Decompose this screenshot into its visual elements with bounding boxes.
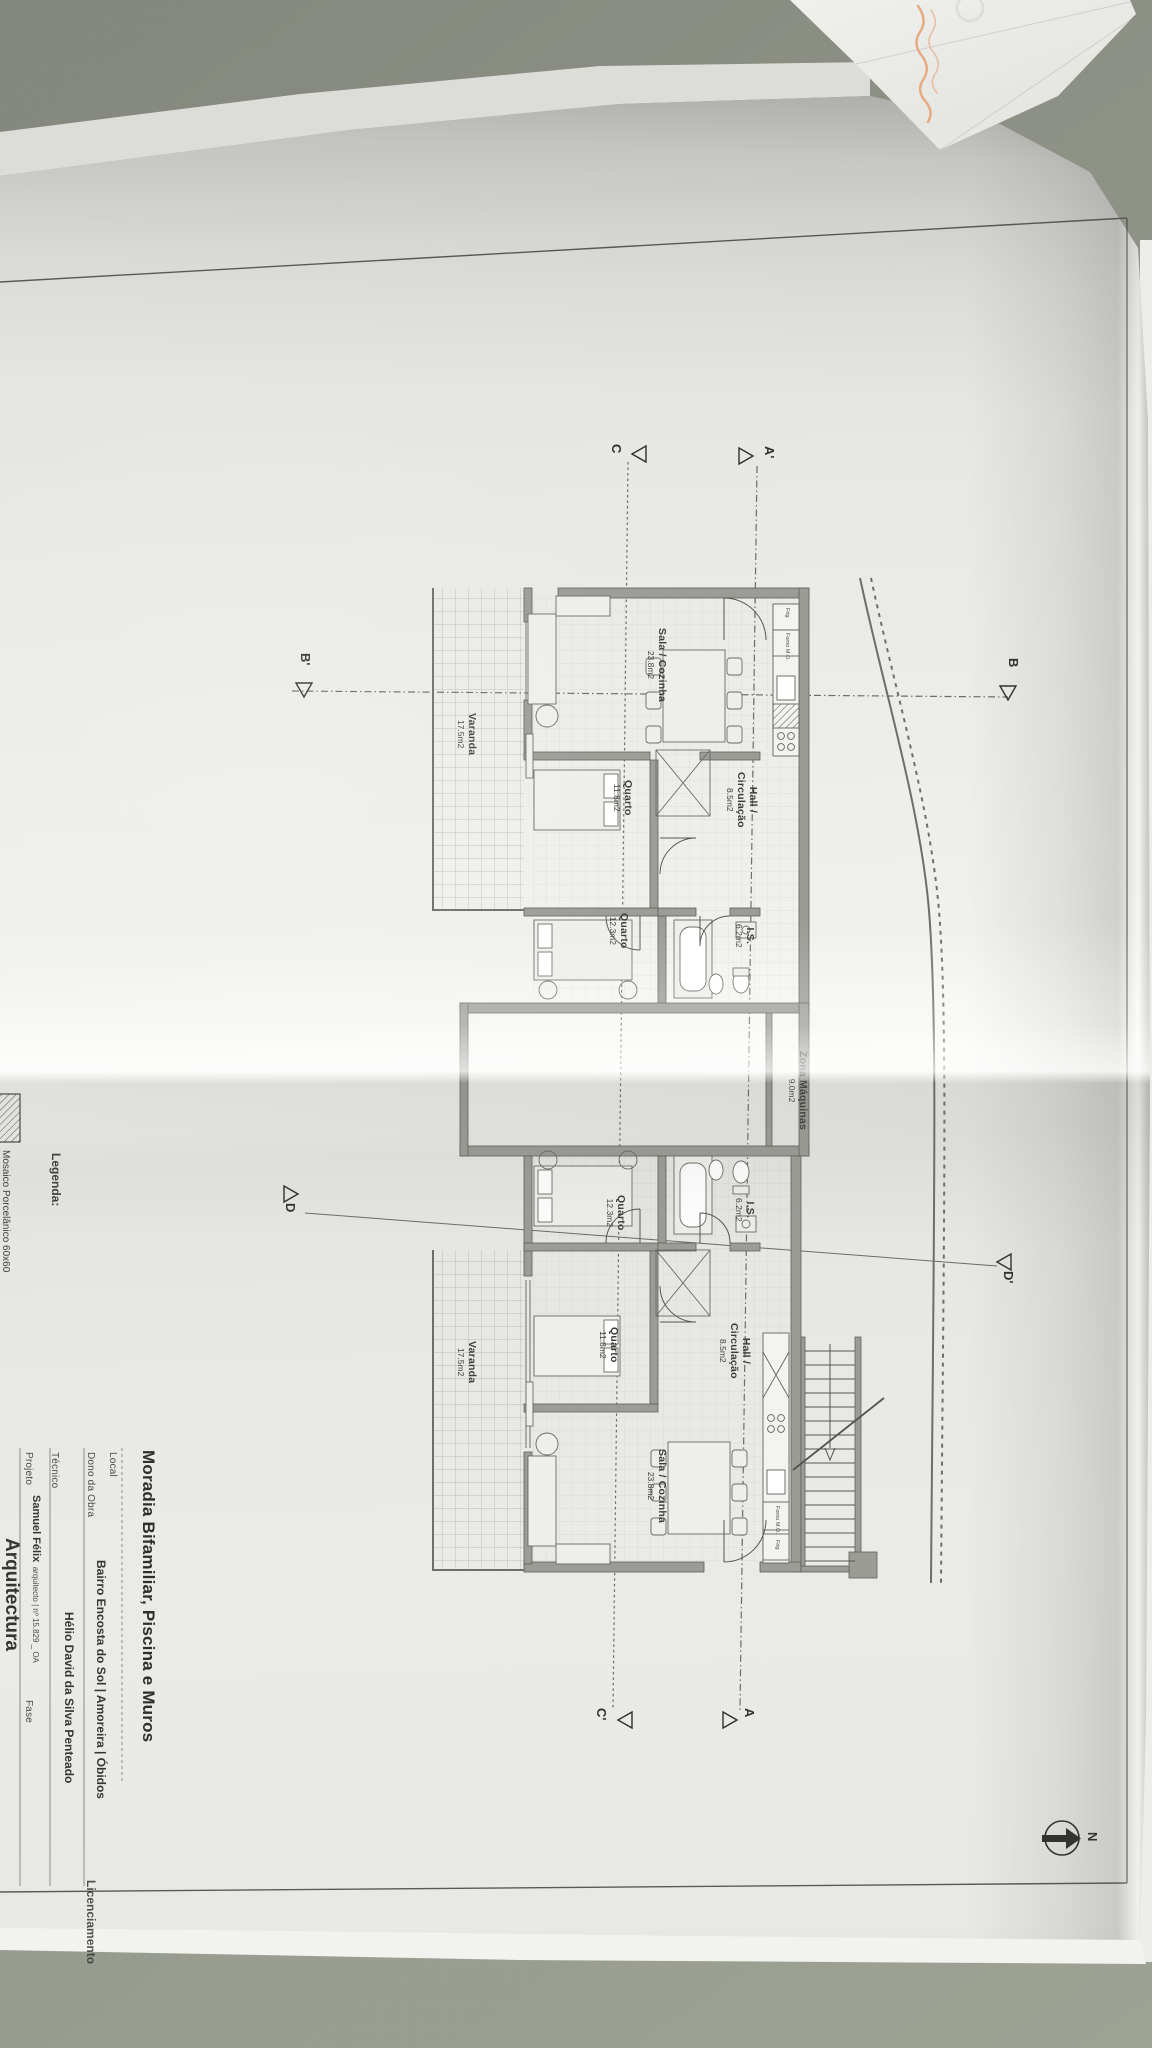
room-label-is-2: I.S. 6.2m2 [734,1198,755,1222]
section-marker-d-prime: D' [1001,1271,1016,1283]
photo-of-floor-plan: C A' C' A B' B D D' Sala / Cozinha 23.8m… [0,0,1152,2048]
legend-swatch-tile [0,1094,20,1142]
room-label-quarto2-1: Quarto 12.3m2 [608,913,629,949]
room-label-hall-1: Hall / Circulação 8.5m2 [725,772,758,828]
title-block-project-label: Projeto [23,1452,34,1485]
title-block-technician-value: Samuel Félix arquitecto | nº 15.829 _ OA [28,1495,46,1663]
room-label-hall-2: Hall / Circulação 8.5m2 [718,1323,751,1379]
section-marker-a: A [742,1708,757,1717]
envelope-creases [856,2,1136,150]
room-label-quarto1-2: Quarto 11.8m2 [598,1327,619,1363]
kitchen-counter-1 [773,604,799,756]
kitchen-fridge-label-1: Frig [784,608,790,617]
room-label-varanda-1: Varanda 17.5m2 [456,713,477,755]
room-label-quarto1-1: Quarto 11.8m2 [612,780,633,816]
room-label-sala-1: Sala / Cozinha 23.8m2 [646,628,667,702]
kitchen-oven-label-1: Forno M.O. [784,633,790,661]
site-boundary [860,578,944,1583]
title-block-owner-value: Hélio David da Silva Penteado [62,1612,76,1783]
title-block-project-value: Arquitectura [0,1538,22,1651]
drawing-frame [0,218,1127,1892]
plan-drawing [0,0,1152,2048]
stairs [793,1344,884,1561]
room-label-sala-2: Sala / Cozinha 23.8m2 [646,1449,667,1523]
envelope-orange-script-icon [916,6,938,122]
kitchen-fridge-label-2: Frig [774,1540,780,1549]
legend-item-label: Mosaico Porcelânico 60x60 [0,1150,11,1272]
title-block-local-label: Local [107,1452,118,1477]
title-block-phase-label: Fase [23,1700,34,1723]
north-label: N [1085,1832,1100,1841]
north-arrow-icon [1042,1821,1081,1855]
tiled-floors [433,588,799,1570]
room-label-varanda-2: Varanda 17.5m2 [456,1341,477,1383]
room-label-zona-maquinas: Zona Máquinas 9.0m2 [787,1051,808,1130]
title-block-technician-label: Técnico [49,1452,60,1488]
title-block-owner-label: Dono da Obra [85,1452,96,1517]
legend-heading: Legenda: [49,1153,63,1206]
envelope-embossed-logo-icon [957,0,983,21]
envelope-decoration [0,0,1152,170]
section-marker-b: B [1006,658,1021,667]
title-block-local-value: Bairro Encosta do Sol | Amoreira | Óbido… [94,1560,108,1799]
room-label-is-1: I.S. 6.2m2 [734,924,755,948]
room-label-quarto2-2: Quarto 12.3m2 [605,1195,626,1231]
section-marker-c-prime: C' [594,1708,609,1720]
title-block-phase-value: Licenciamento [84,1880,98,1964]
walls-middle-block [460,1003,809,1156]
kitchen-oven-label-2: Forno M.O. [774,1506,780,1534]
sheet-title: Moradia Bifamiliar, Piscina e Muros [138,1450,158,1742]
section-marker-a-prime: A' [762,446,777,458]
section-marker-c: C [609,444,624,453]
section-marker-b-prime: B' [298,653,313,665]
section-marker-d: D [283,1203,298,1212]
